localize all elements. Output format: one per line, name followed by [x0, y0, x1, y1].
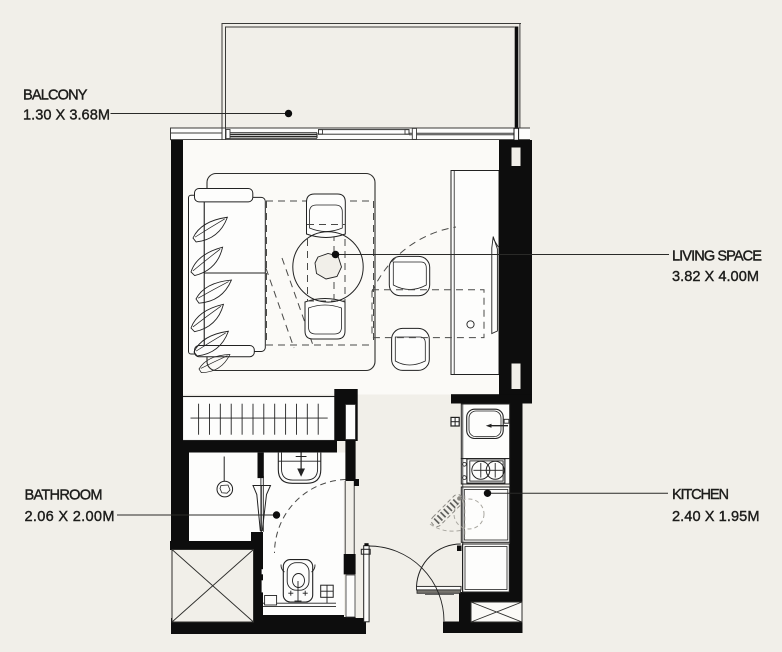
svg-text:2.40 X 1.95M: 2.40 X 1.95M [672, 509, 760, 525]
svg-text:2.06 X 2.00M: 2.06 X 2.00M [25, 509, 115, 525]
svg-text:LIVING SPACE: LIVING SPACE [672, 249, 762, 265]
svg-text:BATHROOM: BATHROOM [25, 488, 103, 504]
svg-text:1.30 X 3.68M: 1.30 X 3.68M [23, 108, 110, 124]
svg-text:KITCHEN: KITCHEN [672, 487, 729, 503]
svg-text:3.82 X 4.00M: 3.82 X 4.00M [672, 269, 759, 285]
svg-text:BALCONY: BALCONY [23, 88, 88, 104]
